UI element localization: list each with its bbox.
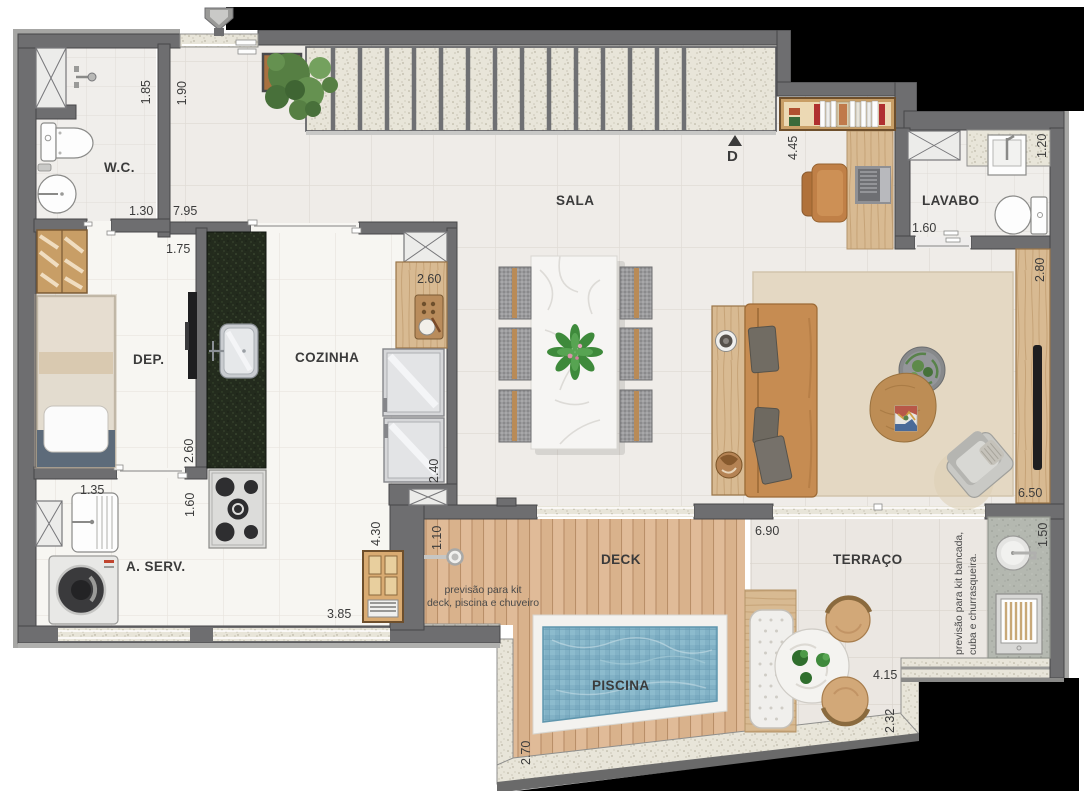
- svg-text:2.60: 2.60: [182, 439, 196, 463]
- svg-text:1.90: 1.90: [175, 81, 189, 105]
- svg-text:6.90: 6.90: [755, 524, 779, 538]
- svg-text:COZINHA: COZINHA: [295, 350, 359, 365]
- svg-text:1.75: 1.75: [166, 242, 190, 256]
- svg-text:1.10: 1.10: [430, 526, 444, 550]
- svg-text:2.60: 2.60: [417, 272, 441, 286]
- svg-text:4.15: 4.15: [873, 668, 897, 682]
- svg-text:2.40: 2.40: [427, 459, 441, 483]
- svg-text:4.30: 4.30: [369, 522, 383, 546]
- svg-text:DEP.: DEP.: [133, 352, 164, 367]
- svg-text:cuba e churrasqueira.: cuba e churrasqueira.: [967, 553, 979, 655]
- svg-text:2.32: 2.32: [883, 709, 897, 733]
- svg-text:3.85: 3.85: [327, 607, 351, 621]
- svg-text:W.C.: W.C.: [104, 160, 135, 175]
- svg-text:4.45: 4.45: [786, 136, 800, 160]
- svg-text:1.30: 1.30: [129, 204, 153, 218]
- svg-text:2.70: 2.70: [519, 741, 533, 765]
- svg-text:1.85: 1.85: [139, 80, 153, 104]
- svg-text:1.35: 1.35: [80, 483, 104, 497]
- svg-text:LAVABO: LAVABO: [922, 193, 979, 208]
- svg-text:DECK: DECK: [601, 552, 641, 567]
- svg-text:PISCINA: PISCINA: [592, 678, 650, 693]
- svg-text:6.50: 6.50: [1018, 486, 1042, 500]
- svg-text:SALA: SALA: [556, 193, 594, 208]
- svg-text:D: D: [727, 148, 738, 165]
- svg-text:A. SERV.: A. SERV.: [126, 559, 185, 574]
- svg-text:7.95: 7.95: [173, 204, 197, 218]
- svg-text:1.60: 1.60: [183, 493, 197, 517]
- svg-text:1.20: 1.20: [1035, 134, 1049, 158]
- svg-text:2.80: 2.80: [1033, 258, 1047, 282]
- svg-text:deck, piscina e chuveiro: deck, piscina e chuveiro: [427, 597, 539, 609]
- svg-text:previsão para kit: previsão para kit: [444, 584, 521, 596]
- svg-text:previsão para kit bancada,: previsão para kit bancada,: [953, 532, 965, 655]
- svg-text:TERRAÇO: TERRAÇO: [833, 552, 903, 567]
- svg-text:1.60: 1.60: [912, 221, 936, 235]
- svg-text:1.50: 1.50: [1036, 523, 1050, 547]
